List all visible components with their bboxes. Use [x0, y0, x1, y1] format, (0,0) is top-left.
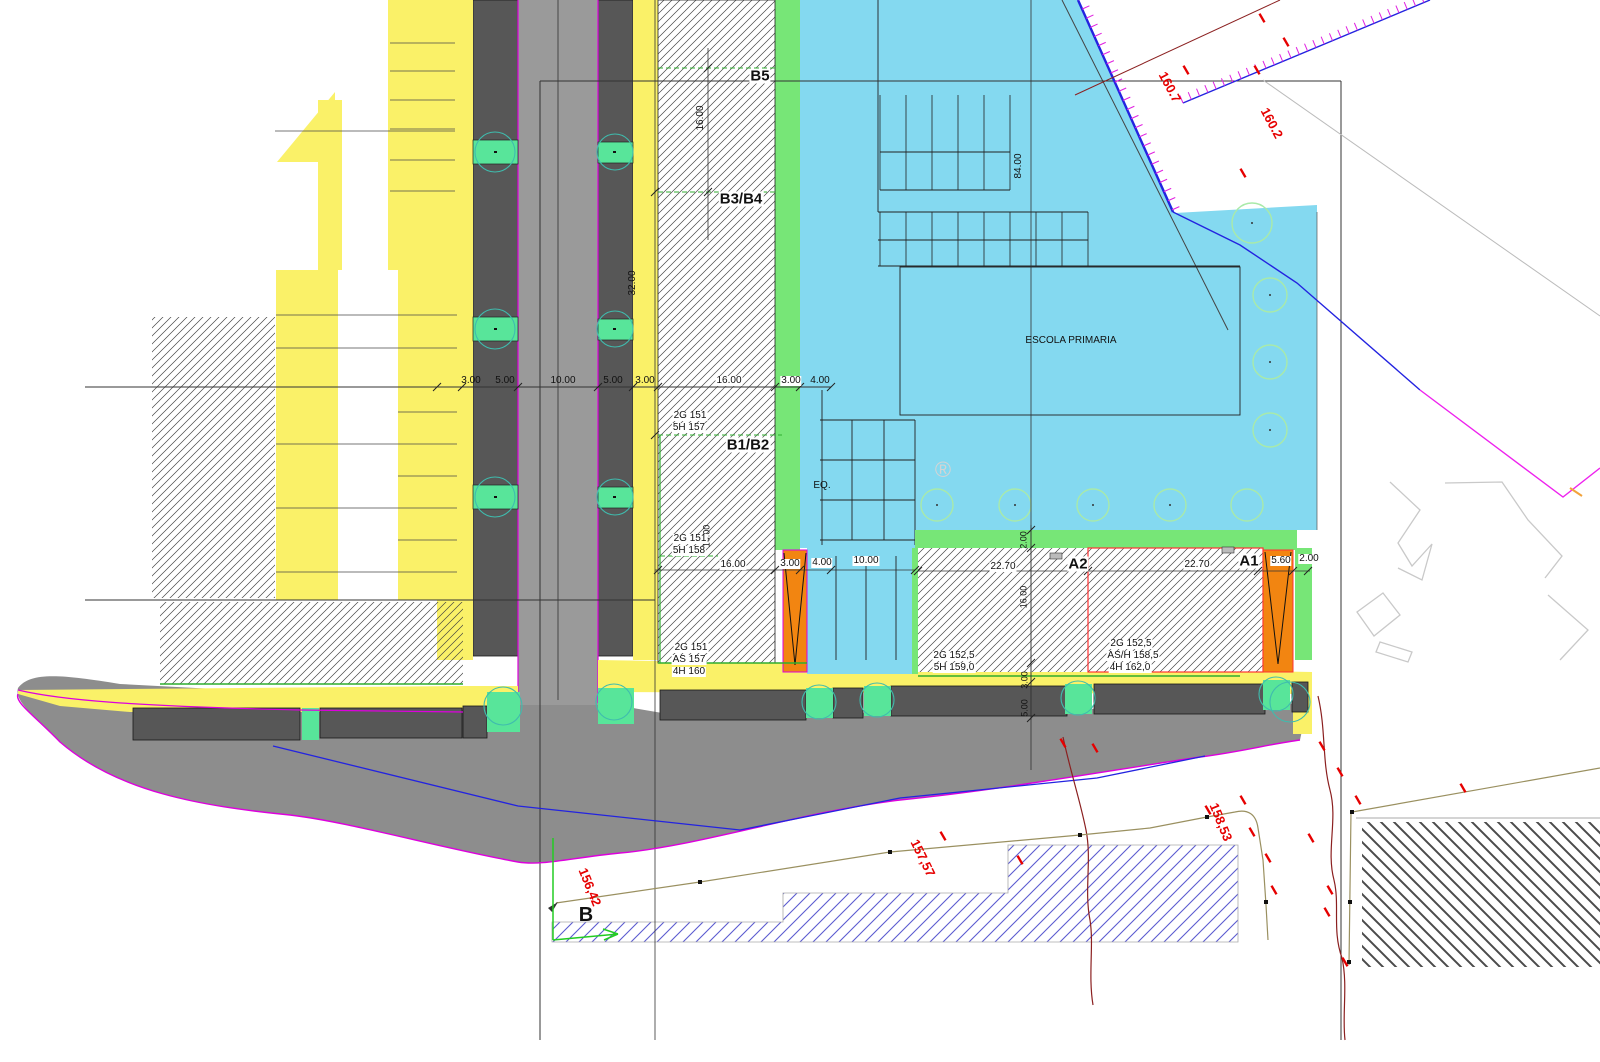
block-parcels-left: [276, 270, 338, 600]
green-edge-a2: [912, 548, 918, 674]
ramp-east: [1263, 550, 1293, 672]
block-parcels-right: [398, 270, 457, 600]
existing-block-hatch-2: [160, 602, 463, 684]
zone-b-column: [658, 0, 775, 663]
block-parcels-top: [388, 0, 455, 270]
contour-zigzags: [1357, 482, 1588, 662]
green-strip-horizontal: [915, 530, 1297, 550]
zone-a-band: [918, 548, 1263, 672]
green-strip-right: [1295, 548, 1312, 660]
green-strip-vertical: [775, 0, 800, 550]
ground-hatches: [552, 818, 1600, 967]
existing-block-hatch-1: [152, 317, 275, 598]
plan-canvas: B5B3/B4B1/B2A2A1ESCOLA PRIMARIAEQ.B3.005…: [0, 0, 1600, 1062]
ramp-west: [783, 550, 807, 672]
sidewalk-road-right: [633, 0, 658, 660]
dark-hatch-area: [1362, 822, 1600, 967]
plan-drawing: [0, 0, 1600, 1062]
